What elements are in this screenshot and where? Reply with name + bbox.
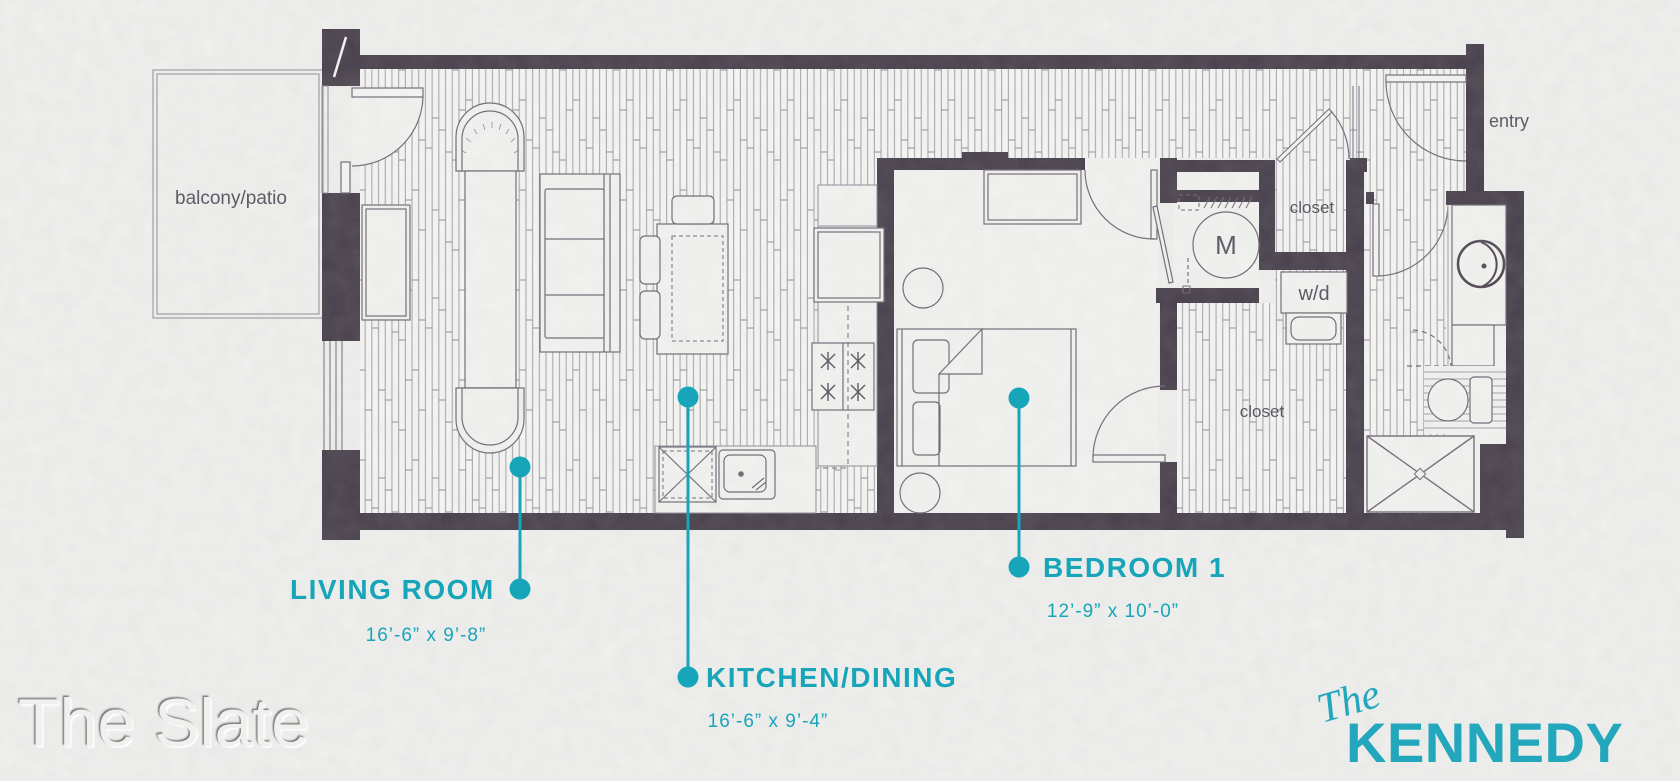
svg-text:KENNEDY: KENNEDY <box>1346 711 1623 774</box>
svg-text:The Slate: The Slate <box>18 685 309 761</box>
svg-text:16’-6” x 9’-8”: 16’-6” x 9’-8” <box>366 625 487 646</box>
svg-text:BEDROOM 1: BEDROOM 1 <box>1043 552 1226 583</box>
svg-text:12’-9” x 10’-0”: 12’-9” x 10’-0” <box>1047 601 1179 622</box>
svg-text:16’-6” x 9’-4”: 16’-6” x 9’-4” <box>708 711 829 732</box>
svg-text:KITCHEN/DINING: KITCHEN/DINING <box>706 662 957 693</box>
svg-text:LIVING ROOM: LIVING ROOM <box>290 574 495 605</box>
